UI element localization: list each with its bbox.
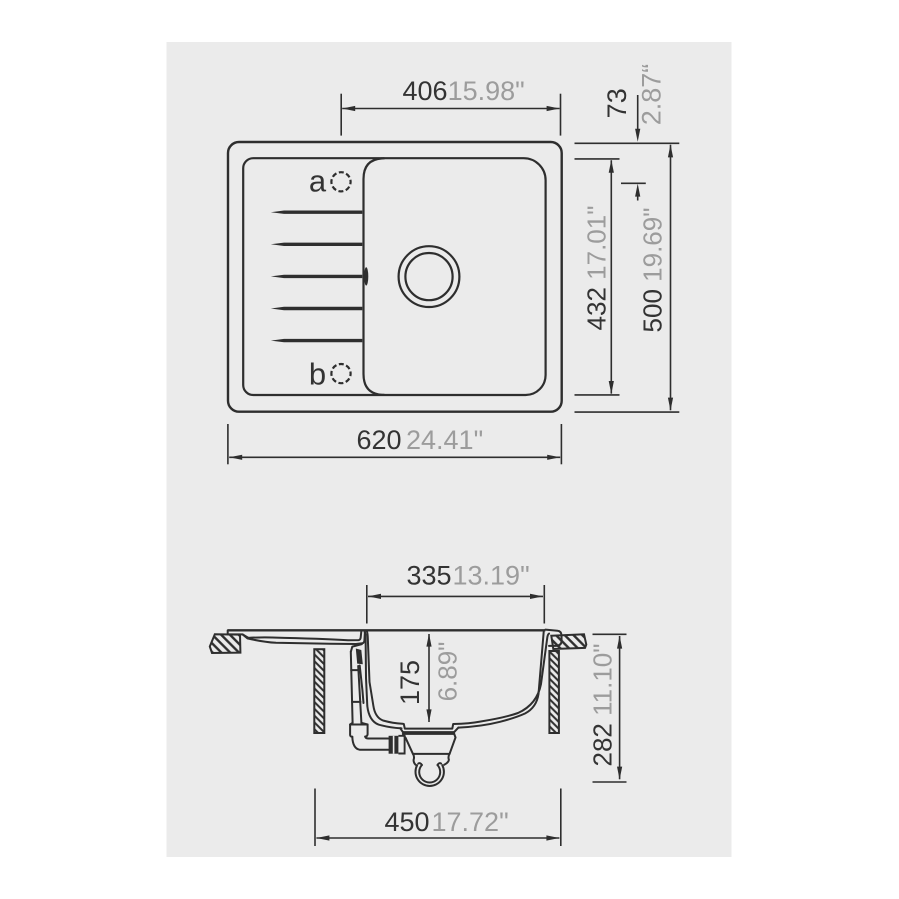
svg-text:6.89": 6.89" xyxy=(433,642,463,702)
svg-text:b: b xyxy=(309,357,326,392)
svg-text:2.87“: 2.87“ xyxy=(637,64,667,126)
svg-text:450: 450 xyxy=(385,807,430,837)
svg-text:73: 73 xyxy=(602,88,632,118)
svg-text:620: 620 xyxy=(357,425,402,455)
svg-text:500 19.69": 500 19.69" xyxy=(638,208,668,333)
svg-text:406: 406 xyxy=(403,76,448,106)
svg-text:24.41": 24.41" xyxy=(406,425,483,455)
svg-text:15.98": 15.98" xyxy=(448,76,525,106)
svg-text:432 17.01": 432 17.01" xyxy=(582,206,612,331)
svg-text:335: 335 xyxy=(407,561,452,591)
svg-text:282 11.10": 282 11.10" xyxy=(588,644,618,767)
svg-text:13.19": 13.19" xyxy=(453,561,530,591)
svg-text:175: 175 xyxy=(395,660,425,705)
svg-text:17.72": 17.72" xyxy=(432,807,509,837)
svg-text:a: a xyxy=(309,164,327,199)
